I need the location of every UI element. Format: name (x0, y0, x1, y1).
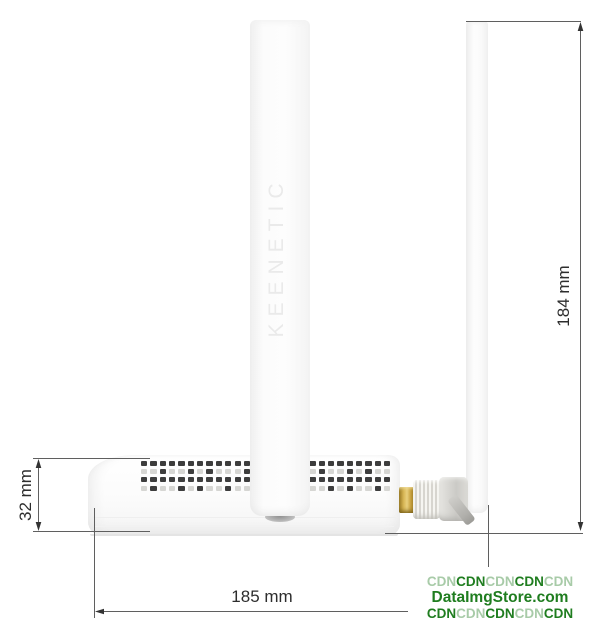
vent-hole (206, 469, 212, 474)
vent-hole (375, 477, 381, 482)
vent-hole (178, 461, 184, 466)
vent-hole (319, 469, 325, 474)
vent-hole (365, 461, 371, 466)
brand-embossed-text: KEENETIC (265, 176, 289, 337)
vent-hole (197, 486, 203, 491)
vent-hole (356, 477, 362, 482)
vent-hole (356, 469, 362, 474)
watermark: CDNCDNCDNCDNCDNDataImgStore.comCDNCDNCDN… (408, 567, 606, 640)
vent-hole (160, 486, 166, 491)
vent-hole (150, 477, 156, 482)
watermark-segment: CDN (456, 606, 485, 621)
vent-hole (347, 461, 353, 466)
watermark-segment: CDN (485, 606, 514, 621)
vent-hole (178, 486, 184, 491)
vent-hole (160, 469, 166, 474)
vent-hole (188, 486, 194, 491)
watermark-cdn-line: CDNCDNCDNCDNCDN (427, 606, 573, 622)
vent-hole (160, 477, 166, 482)
vent-hole (328, 461, 334, 466)
vent-hole (206, 461, 212, 466)
vent-hole (216, 469, 222, 474)
vent-hole (328, 477, 334, 482)
vent-hole (319, 461, 325, 466)
vent-hole (150, 486, 156, 491)
watermark-segment: CDN (515, 606, 544, 621)
vent-hole (178, 469, 184, 474)
vent-hole (356, 486, 362, 491)
vent-hole (141, 486, 147, 491)
vent-hole (225, 461, 231, 466)
vent-hole (150, 469, 156, 474)
vent-hole (235, 486, 241, 491)
router-base-seam (92, 517, 396, 518)
vent-hole (328, 486, 334, 491)
watermark-cdn-line: CDNCDNCDNCDNCDN (427, 574, 573, 590)
vent-hole (169, 461, 175, 466)
vent-hole (347, 477, 353, 482)
vent-hole (384, 469, 390, 474)
vent-hole (225, 469, 231, 474)
vent-hole (216, 461, 222, 466)
vent-hole (197, 477, 203, 482)
vent-hole (188, 469, 194, 474)
vent-hole (206, 477, 212, 482)
router-bottom-edge (90, 534, 398, 536)
vent-hole (328, 469, 334, 474)
vent-hole (365, 486, 371, 491)
watermark-segment: CDN (485, 574, 514, 589)
vent-hole (216, 486, 222, 491)
watermark-segment: CDN (544, 574, 573, 589)
vent-hole (169, 469, 175, 474)
vent-hole (375, 486, 381, 491)
vent-hole (384, 486, 390, 491)
vent-hole (375, 461, 381, 466)
watermark-segment: CDN (427, 574, 456, 589)
vent-hole (141, 461, 147, 466)
arrow-bodyheight-top (36, 459, 42, 468)
dim-body-height-label: 32 mm (16, 469, 36, 521)
antenna-knurled-nut (413, 480, 440, 519)
vent-hole (375, 469, 381, 474)
vent-hole (384, 461, 390, 466)
vent-hole (235, 477, 241, 482)
vent-hole (188, 477, 194, 482)
vent-hole (337, 469, 343, 474)
vent-hole (365, 469, 371, 474)
watermark-site-text: DataImgStore.com (432, 590, 569, 607)
watermark-segment: CDN (427, 606, 456, 621)
vent-hole (197, 461, 203, 466)
vent-hole (319, 477, 325, 482)
vent-hole (141, 477, 147, 482)
vent-hole (225, 486, 231, 491)
arrow-bodyheight-bottom (36, 522, 42, 531)
product-dimension-figure: KEENETIC 184 mm 32 mm 185 mm CDNCDNCDNCD… (0, 0, 606, 640)
vent-hole (169, 477, 175, 482)
vent-hole (347, 469, 353, 474)
vent-hole (384, 477, 390, 482)
watermark-segment: CDN (544, 606, 573, 621)
vent-hole (206, 486, 212, 491)
dim-height-label: 184 mm (554, 265, 574, 326)
router-base-seam (94, 526, 394, 527)
vent-hole (235, 461, 241, 466)
vent-hole (225, 477, 231, 482)
arrow-height-bottom (578, 522, 584, 531)
vent-hole (309, 469, 315, 474)
vent-hole (178, 477, 184, 482)
watermark-segment: CDN (515, 574, 544, 589)
dim-width-label: 185 mm (231, 587, 292, 607)
vent-hole (309, 461, 315, 466)
vent-hole (356, 461, 362, 466)
vent-hole (188, 461, 194, 466)
watermark-segment: CDN (456, 574, 485, 589)
rear-antenna (466, 21, 488, 513)
vent-hole (365, 477, 371, 482)
vent-hole (347, 486, 353, 491)
vent-hole (337, 486, 343, 491)
vent-hole (160, 461, 166, 466)
vent-hole (169, 486, 175, 491)
vent-hole (216, 477, 222, 482)
watermark-segment: DataImgStore.com (432, 589, 569, 606)
vent-hole (337, 477, 343, 482)
vent-hole (235, 469, 241, 474)
vent-hole (150, 461, 156, 466)
vent-hole (197, 469, 203, 474)
vent-hole (309, 477, 315, 482)
vent-hole (319, 486, 325, 491)
vent-hole (309, 486, 315, 491)
arrow-width-left (95, 609, 104, 615)
vent-hole (337, 461, 343, 466)
arrow-height-top (578, 22, 584, 31)
vent-hole (141, 469, 147, 474)
